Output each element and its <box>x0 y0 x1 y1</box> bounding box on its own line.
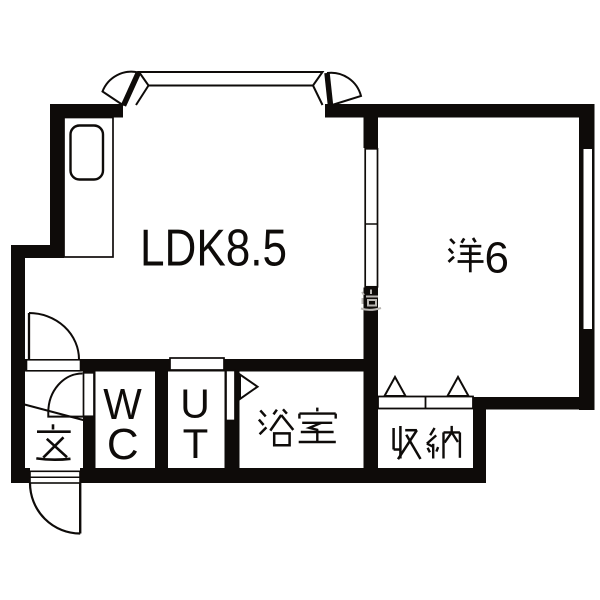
svg-text:T: T <box>183 420 209 467</box>
svg-text:6: 6 <box>485 233 509 282</box>
svg-text:C: C <box>107 420 139 469</box>
svg-text:LDK8.5: LDK8.5 <box>140 219 287 277</box>
